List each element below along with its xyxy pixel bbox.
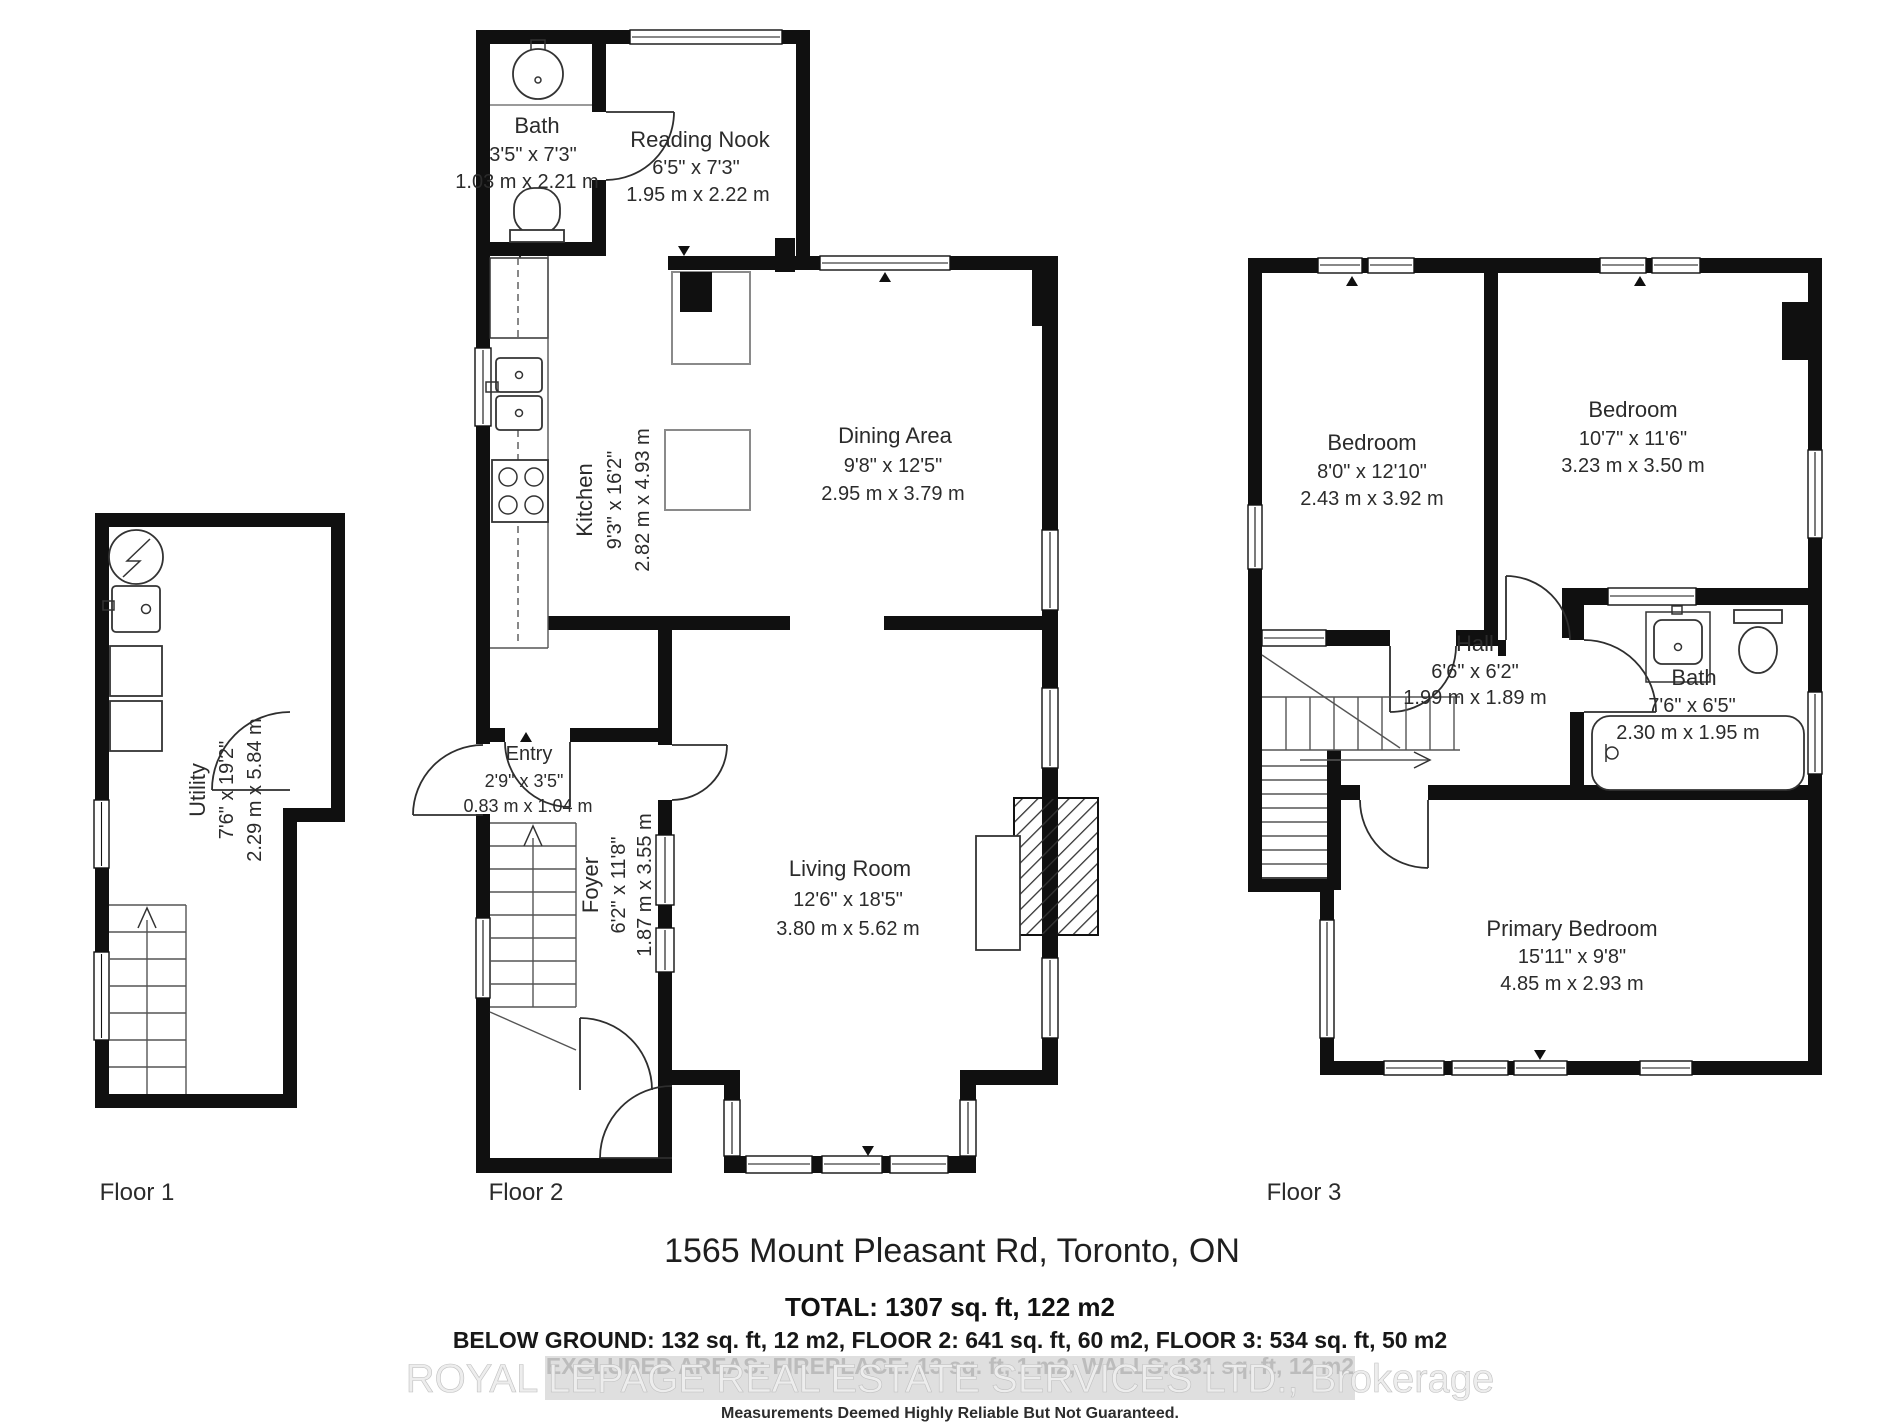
furnace-icon bbox=[109, 530, 163, 584]
primary-dim-metric: 4.85 m x 2.93 m bbox=[1500, 973, 1643, 995]
nook-dim-metric: 1.95 m x 2.22 m bbox=[626, 184, 769, 206]
floor-plan-canvas: Utility 7'6" x 19'2" 2.29 m x 5.84 m Flo… bbox=[0, 0, 1900, 1425]
bedroom-right-label: Bedroom 10'7" x 11'6" 3.23 m x 3.50 m bbox=[1561, 397, 1704, 477]
kitchen-label: Kitchen 9'3" x 16'2" 2.82 m x 4.93 m bbox=[572, 428, 654, 571]
floor-2: Bath 3'5" x 7'3" 1.03 m x 2.21 m Reading… bbox=[413, 30, 1098, 1206]
entry-dim-metric: 0.83 m x 1.04 m bbox=[463, 796, 592, 816]
primary-name: Primary Bedroom bbox=[1486, 916, 1657, 941]
floor3-label: Floor 3 bbox=[1267, 1179, 1342, 1206]
bath2-sink-icon bbox=[490, 40, 592, 105]
entry-dim-imperial: 2'9" x 3'5" bbox=[485, 771, 564, 791]
foyer-name: Foyer bbox=[578, 857, 603, 913]
stove-icon bbox=[492, 460, 548, 522]
hall-dim-metric: 1.99 m x 1.89 m bbox=[1403, 687, 1546, 709]
bath2-dim-metric: 1.03 m x 2.21 m bbox=[455, 171, 598, 193]
foyer-dim-imperial: 6'2" x 11'8" bbox=[608, 836, 630, 933]
utility-dim-metric: 2.29 m x 5.84 m bbox=[244, 718, 266, 861]
laundry-sink-icon bbox=[103, 586, 160, 632]
utility-room-label: Utility 7'6" x 19'2" 2.29 m x 5.84 m bbox=[185, 718, 266, 861]
utility-dim-imperial: 7'6" x 19'2" bbox=[216, 741, 238, 840]
bedroom-right-name: Bedroom bbox=[1588, 397, 1677, 422]
total-area-line: TOTAL: 1307 sq. ft, 122 m2 bbox=[785, 1292, 1115, 1322]
fireplace-icon bbox=[976, 798, 1098, 950]
dining-name: Dining Area bbox=[838, 423, 953, 448]
dryer-icon bbox=[110, 701, 162, 751]
nook-name: Reading Nook bbox=[630, 127, 770, 152]
brokerage-watermark: ROYAL LEPAGE REAL ESTATE SERVICES LTD., … bbox=[406, 1357, 1495, 1401]
living-dim-metric: 3.80 m x 5.62 m bbox=[776, 918, 919, 940]
kitchen-name: Kitchen bbox=[572, 463, 597, 536]
kitchen-counter bbox=[490, 256, 548, 648]
utility-name: Utility bbox=[185, 763, 210, 817]
bath3-dim-imperial: 7'6" x 6'5" bbox=[1648, 695, 1735, 717]
bath3-dim-metric: 2.30 m x 1.95 m bbox=[1616, 722, 1759, 744]
disclaimer-text: Measurements Deemed Highly Reliable But … bbox=[721, 1405, 1179, 1422]
living-label: Living Room 12'6" x 18'5" 3.80 m x 5.62 … bbox=[776, 856, 919, 940]
living-name: Living Room bbox=[789, 856, 911, 881]
foyer-dim-metric: 1.87 m x 3.55 m bbox=[634, 813, 656, 956]
bedroom-right-dim-metric: 3.23 m x 3.50 m bbox=[1561, 455, 1704, 477]
living-dim-imperial: 12'6" x 18'5" bbox=[793, 889, 903, 911]
dining-label: Dining Area 9'8" x 12'5" 2.95 m x 3.79 m bbox=[821, 423, 964, 505]
entry-name: Entry bbox=[506, 743, 553, 765]
floor1-label: Floor 1 bbox=[100, 1179, 175, 1206]
dining-dim-imperial: 9'8" x 12'5" bbox=[844, 455, 943, 477]
bedroom-left-dim-imperial: 8'0" x 12'10" bbox=[1317, 461, 1427, 483]
floor2-label: Floor 2 bbox=[489, 1179, 564, 1206]
primary-bedroom-label: Primary Bedroom 15'11" x 9'8" 4.85 m x 2… bbox=[1486, 916, 1657, 995]
washer-icon bbox=[110, 646, 162, 696]
floor-1: Utility 7'6" x 19'2" 2.29 m x 5.84 m Flo… bbox=[94, 513, 345, 1206]
bedroom-left-dim-metric: 2.43 m x 3.92 m bbox=[1300, 488, 1443, 510]
dining-dim-metric: 2.95 m x 3.79 m bbox=[821, 483, 964, 505]
primary-dim-imperial: 15'11" x 9'8" bbox=[1518, 946, 1626, 968]
fridge-icon bbox=[672, 272, 750, 364]
dining-table-icon bbox=[665, 430, 750, 510]
footer: 1565 Mount Pleasant Rd, Toronto, ON TOTA… bbox=[406, 1232, 1495, 1422]
bath3-name: Bath bbox=[1671, 665, 1716, 690]
bath3-label: Bath 7'6" x 6'5" 2.30 m x 1.95 m bbox=[1616, 665, 1759, 744]
hall-dim-imperial: 6'6" x 6'2" bbox=[1431, 661, 1518, 683]
bedroom-right-dim-imperial: 10'7" x 11'6" bbox=[1579, 428, 1687, 450]
kitchen-dim-imperial: 9'3" x 16'2" bbox=[604, 451, 626, 550]
address-title: 1565 Mount Pleasant Rd, Toronto, ON bbox=[664, 1232, 1240, 1270]
foyer-label: Foyer 6'2" x 11'8" 1.87 m x 3.55 m bbox=[578, 813, 656, 956]
bedroom-left-label: Bedroom 8'0" x 12'10" 2.43 m x 3.92 m bbox=[1300, 430, 1443, 510]
bath2-dim-imperial: 3'5" x 7'3" bbox=[489, 144, 576, 166]
floor1-stairs bbox=[109, 905, 186, 1094]
kitchen-sink-icon bbox=[486, 358, 542, 430]
floor-3: Bedroom 8'0" x 12'10" 2.43 m x 3.92 m Be… bbox=[1248, 258, 1822, 1206]
nook-dim-imperial: 6'5" x 7'3" bbox=[652, 157, 739, 179]
hall-name: Hall bbox=[1456, 631, 1494, 656]
floor2-stairs bbox=[490, 823, 576, 1050]
bath2-name: Bath bbox=[514, 113, 559, 138]
bedroom-left-name: Bedroom bbox=[1327, 430, 1416, 455]
floor-plan-page: Utility 7'6" x 19'2" 2.29 m x 5.84 m Flo… bbox=[0, 0, 1900, 1425]
bath2-toilet-icon bbox=[510, 188, 564, 242]
kitchen-dim-metric: 2.82 m x 4.93 m bbox=[632, 428, 654, 571]
area-breakdown-line: BELOW GROUND: 132 sq. ft, 12 m2, FLOOR 2… bbox=[453, 1327, 1447, 1353]
bath3-toilet-icon bbox=[1734, 610, 1782, 673]
